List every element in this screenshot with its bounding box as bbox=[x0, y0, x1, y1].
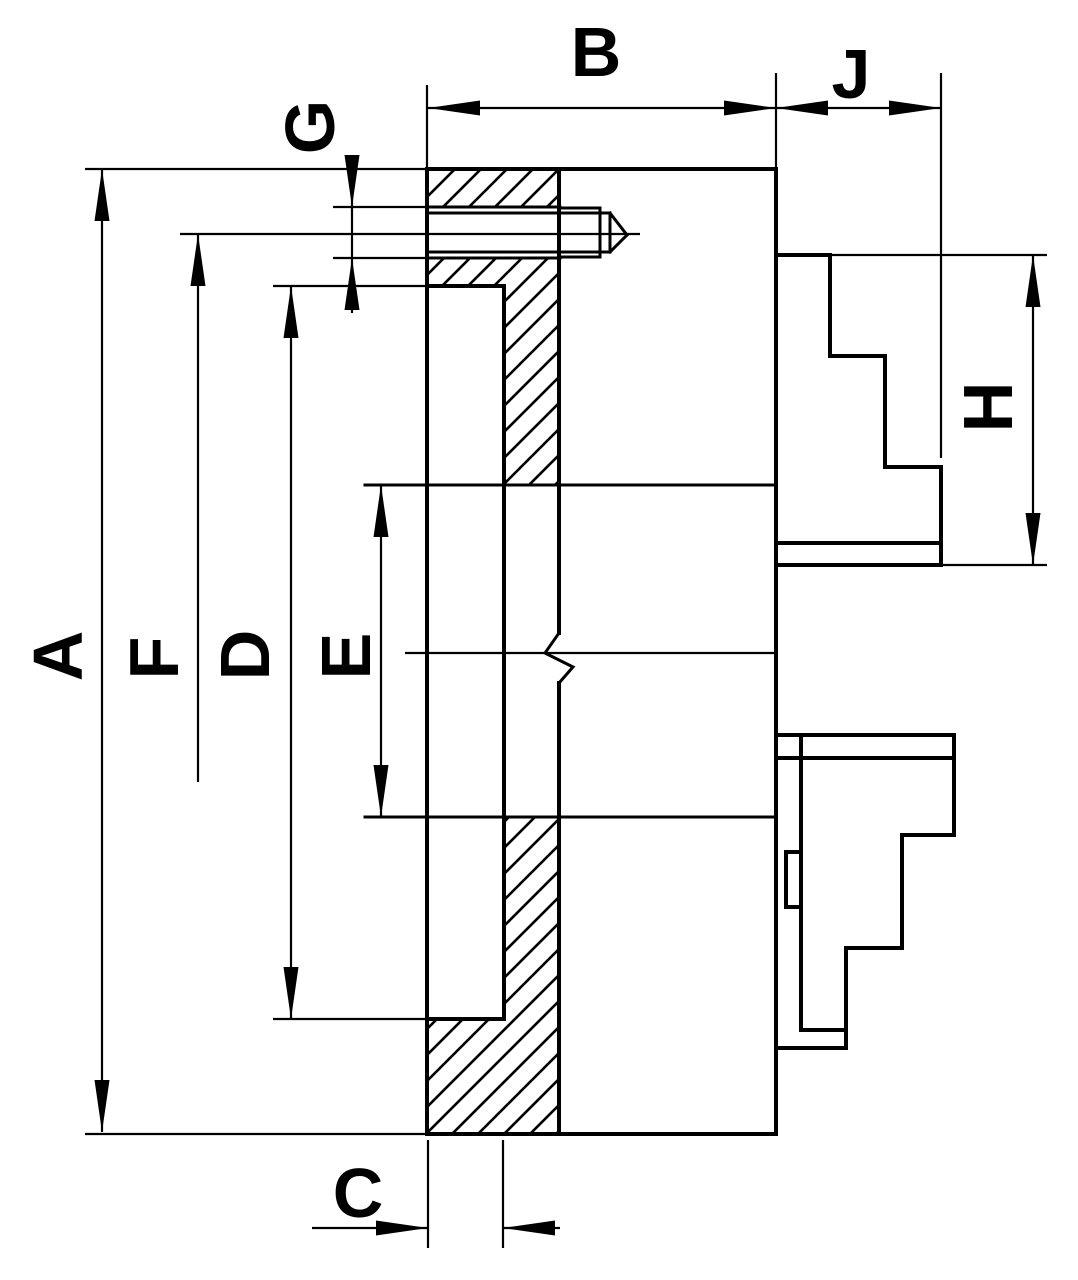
dim-label-g: G bbox=[271, 100, 349, 154]
dim-j-arrow-left bbox=[776, 101, 828, 116]
drawing-canvas: A F D E G H B J C bbox=[0, 0, 1078, 1280]
dim-label-c: C bbox=[333, 1154, 384, 1232]
dim-g-arrow-down bbox=[345, 155, 360, 207]
dim-h-arrow-up bbox=[1026, 255, 1041, 307]
section-hatching bbox=[427, 169, 559, 1134]
dim-h-arrow-down bbox=[1026, 513, 1041, 565]
dim-f-arrow-up bbox=[191, 234, 206, 286]
dim-c-arrow-left bbox=[503, 1221, 555, 1236]
screw-cone-upper bbox=[610, 213, 627, 235]
dim-d-arrow-up bbox=[284, 286, 299, 338]
dim-label-h: H bbox=[949, 382, 1027, 433]
dim-e-arrow-down bbox=[374, 765, 389, 817]
dim-b-arrow-right bbox=[724, 101, 776, 116]
mounting-screw bbox=[427, 207, 627, 258]
hatch-top-flange bbox=[427, 169, 559, 207]
screw-cone-lower bbox=[610, 235, 627, 252]
dim-label-a: A bbox=[19, 631, 97, 682]
chuck-section-drawing: A F D E G H B J C bbox=[0, 0, 1078, 1280]
dim-a-arrow-up bbox=[95, 169, 110, 221]
dim-label-e: E bbox=[307, 633, 385, 680]
dim-label-f: F bbox=[115, 637, 193, 680]
dim-e-arrow-up bbox=[374, 485, 389, 537]
dim-label-j: J bbox=[832, 35, 871, 113]
break-symbol bbox=[545, 633, 573, 683]
dim-label-d: D bbox=[206, 630, 284, 681]
hatch-lower-wall bbox=[427, 817, 559, 1134]
chuck-body bbox=[365, 169, 776, 1134]
dim-j-arrow-right bbox=[889, 101, 941, 116]
lower-jaw bbox=[776, 735, 954, 1048]
hatch-upper-wall bbox=[427, 258, 559, 485]
dim-g-arrow-up bbox=[345, 258, 360, 310]
dim-d-arrow-down bbox=[284, 967, 299, 1019]
dim-a-arrow-down bbox=[95, 1080, 110, 1132]
dim-label-b: B bbox=[571, 13, 622, 91]
dim-b-arrow-left bbox=[428, 101, 480, 116]
upper-jaw bbox=[776, 255, 941, 565]
dim-c-arrow-right bbox=[376, 1221, 428, 1236]
